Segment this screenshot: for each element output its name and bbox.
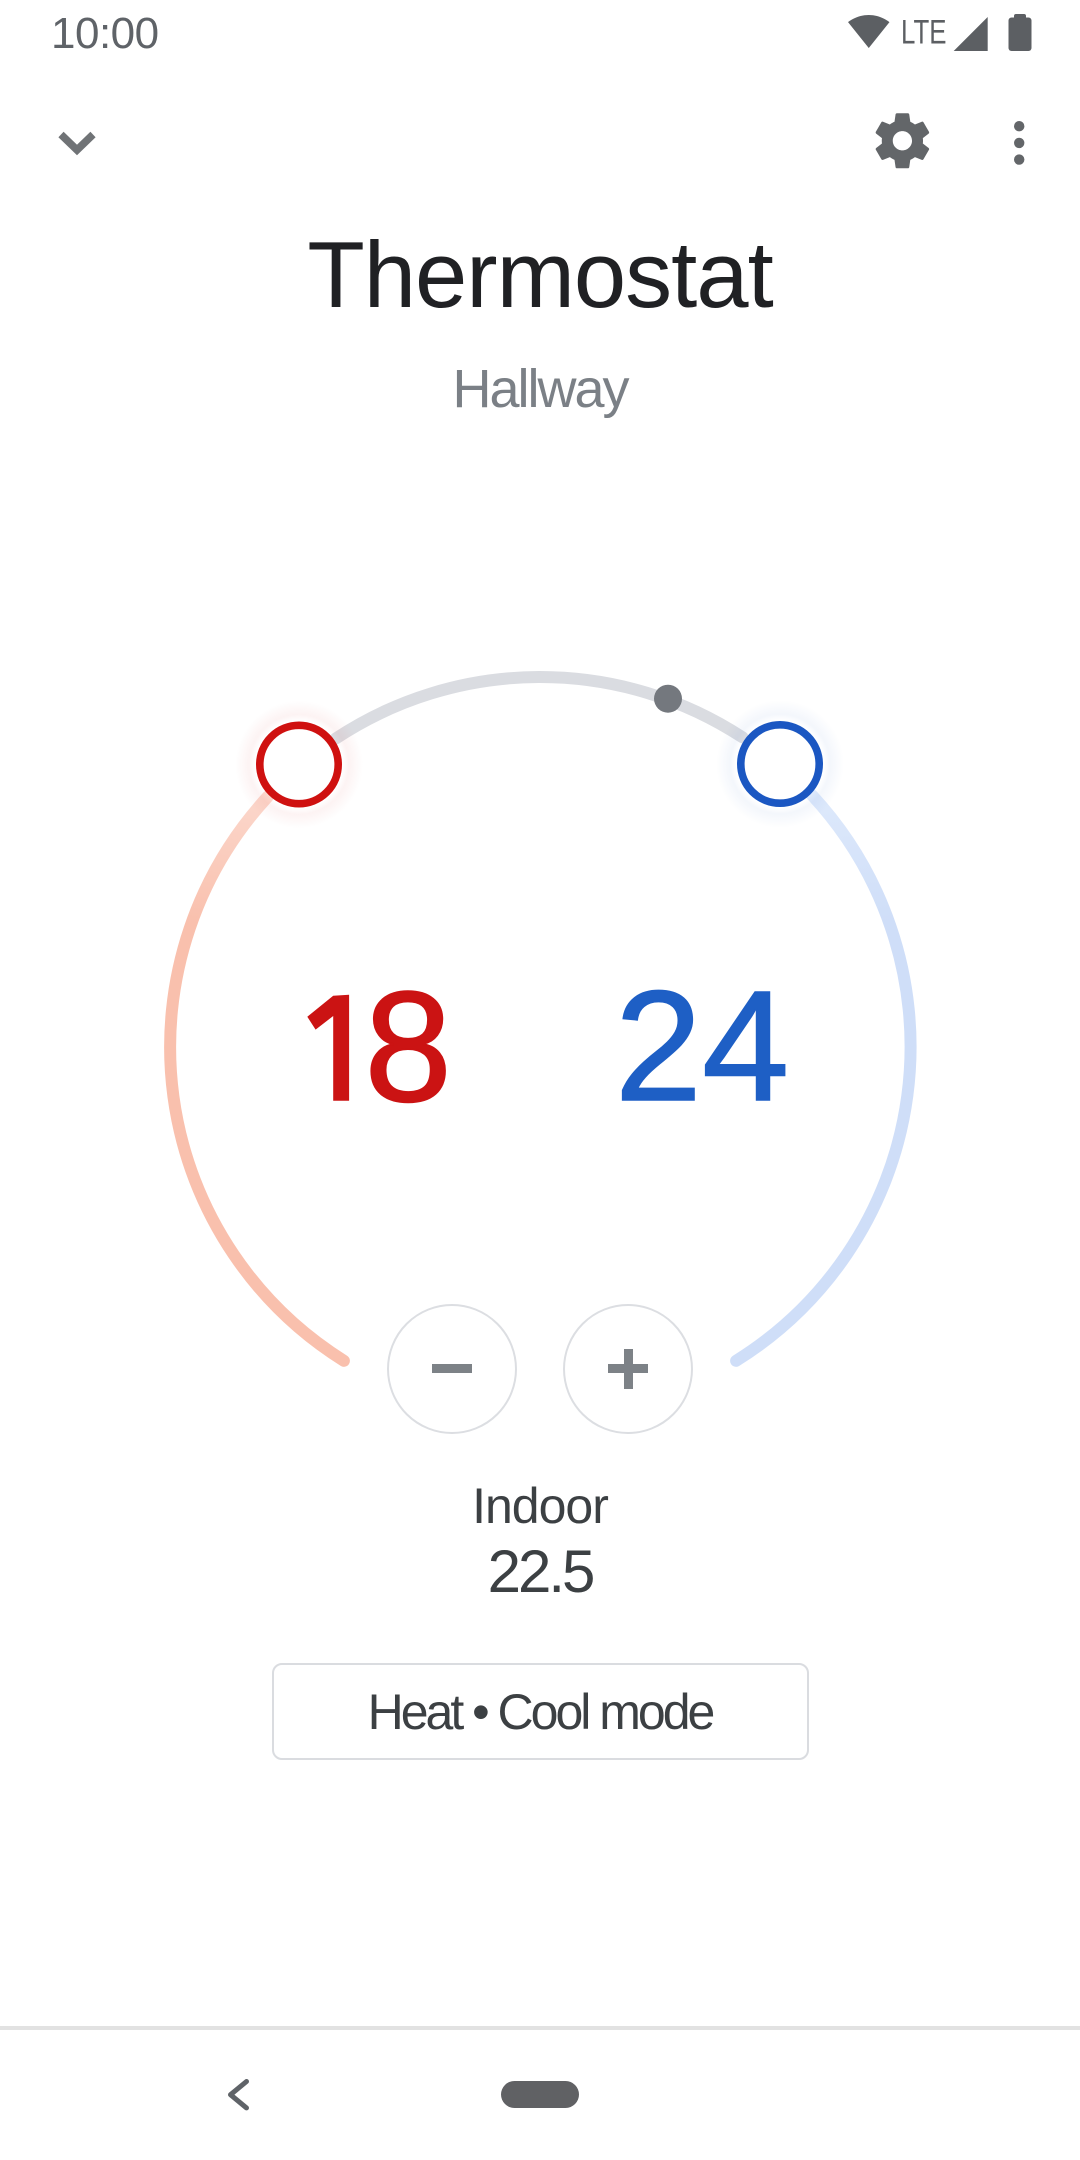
svg-text:8: 8	[365, 960, 452, 1135]
